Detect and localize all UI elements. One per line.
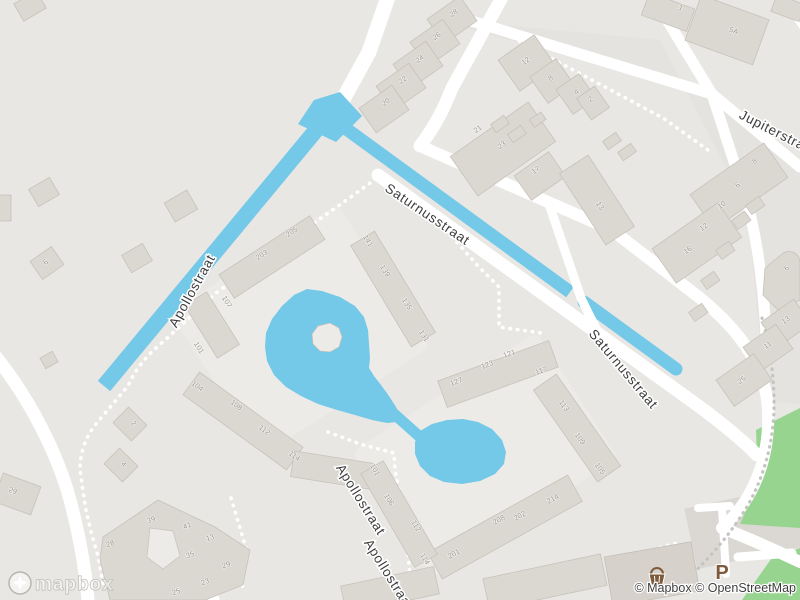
waterways	[104, 0, 676, 484]
mapbox-logo[interactable]: mapbox	[9, 572, 114, 595]
building	[701, 271, 720, 289]
map-canvas[interactable]: 28262422201284221231715A8610121661311251…	[0, 0, 800, 600]
building	[0, 473, 41, 515]
road-southwest-curve	[0, 352, 88, 600]
pond-island	[312, 323, 342, 352]
building	[771, 0, 800, 22]
building	[29, 177, 60, 206]
map-viewport[interactable]: 28262422201284221231715A8610121661311251…	[0, 0, 800, 600]
building	[122, 243, 153, 272]
building	[560, 155, 635, 245]
building	[483, 554, 607, 600]
parking-aisle	[738, 553, 792, 557]
map-attribution[interactable]: © Mapbox © OpenStreetMap	[634, 581, 796, 595]
building	[603, 132, 622, 149]
building	[14, 0, 47, 21]
building	[618, 143, 637, 160]
building	[164, 190, 198, 222]
building	[0, 195, 11, 221]
house-number: 21	[472, 123, 484, 135]
building	[685, 0, 769, 65]
mapbox-logo-text: mapbox	[35, 574, 114, 595]
building	[40, 351, 58, 368]
